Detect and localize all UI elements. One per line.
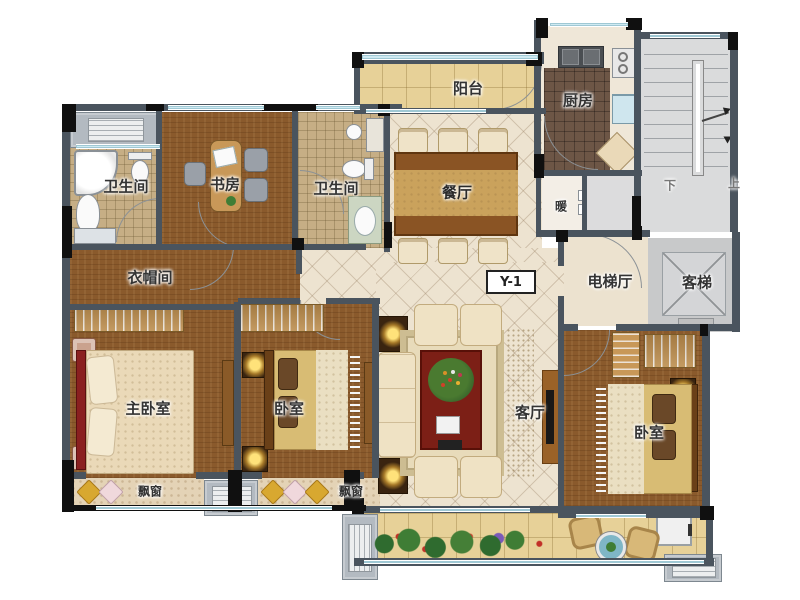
wall <box>558 296 564 330</box>
bed-runner <box>316 350 348 450</box>
wall-black <box>146 104 164 111</box>
window <box>364 560 704 564</box>
wall <box>372 302 379 478</box>
wall-black <box>700 506 714 520</box>
wall-black <box>62 206 72 258</box>
bed-pillow <box>652 394 676 424</box>
label-bay-window-middle: 飘窗 <box>339 483 363 500</box>
wall <box>64 244 366 250</box>
patio-table-plant <box>606 542 616 552</box>
wall <box>536 174 541 234</box>
window <box>96 506 332 510</box>
window <box>362 54 538 60</box>
label-bedroom-middle: 卧室 <box>274 398 304 419</box>
wall <box>156 110 162 250</box>
stove-burner <box>618 52 628 62</box>
toilet-bowl <box>342 160 366 178</box>
wall-black <box>292 238 304 250</box>
toilet-tank <box>364 158 374 180</box>
window <box>168 105 264 110</box>
armchair <box>414 304 458 346</box>
wall-black <box>626 18 642 30</box>
dining-chair <box>438 128 468 154</box>
bookshelf <box>612 332 640 378</box>
window <box>316 105 360 110</box>
dining-chair <box>398 128 428 154</box>
label-kitchen: 厨房 <box>563 90 593 111</box>
wall <box>702 330 710 518</box>
wall <box>64 304 240 310</box>
armchair <box>414 456 458 498</box>
bed-fringe <box>350 352 360 448</box>
bed-pillow <box>86 355 119 406</box>
dining-chair <box>478 238 508 264</box>
label-study: 书房 <box>210 174 240 195</box>
window <box>650 34 720 38</box>
label-balcony-top: 阳台 <box>453 78 483 99</box>
flower-bed <box>368 524 572 560</box>
dining-chair <box>438 238 468 264</box>
wall <box>732 232 740 332</box>
wall <box>582 174 587 234</box>
label-bathroom-left: 卫生间 <box>103 176 148 197</box>
wall-black <box>384 222 392 248</box>
wall <box>538 170 642 176</box>
wall-black <box>62 460 74 512</box>
label-stairs-up: 上 <box>728 175 740 192</box>
bed-headboard <box>76 350 86 470</box>
bed-fringe <box>596 386 606 492</box>
wall-black <box>728 32 738 50</box>
washing-machine <box>74 228 116 244</box>
flower-dots <box>448 378 452 382</box>
bath-cabinet <box>366 118 384 152</box>
pedestal-sink <box>76 194 100 232</box>
wall-black <box>262 104 318 111</box>
remote-control <box>438 440 462 450</box>
kitchen-sink-basin <box>562 49 579 65</box>
marble-pad-handle <box>688 524 692 536</box>
serving-tray <box>436 416 460 434</box>
window <box>380 508 530 512</box>
wall-black <box>536 18 548 38</box>
unit-code-label: Y-1 <box>500 275 522 290</box>
desk-chair <box>244 178 268 202</box>
window <box>550 22 628 27</box>
window <box>366 109 486 113</box>
dining-chair <box>398 238 428 264</box>
bed-pillow <box>278 358 298 390</box>
wall <box>296 248 302 274</box>
wall <box>616 324 738 331</box>
ac-unit <box>88 118 144 142</box>
label-stairs-down: 下 <box>664 177 676 194</box>
window <box>76 144 160 149</box>
dresser <box>222 360 234 446</box>
label-bay-window-left: 飘窗 <box>138 483 162 500</box>
wardrobe-rack <box>240 304 324 332</box>
wall-black <box>62 104 76 132</box>
wall-black <box>352 498 364 514</box>
wall <box>558 330 564 518</box>
stove-burner <box>618 64 628 74</box>
kitchen-sink-basin <box>583 49 600 65</box>
wall-black <box>632 226 642 240</box>
label-master-bedroom: 主卧室 <box>125 398 170 419</box>
wall <box>730 32 738 232</box>
wash-basin <box>346 124 362 140</box>
wall-black <box>534 154 544 178</box>
sofa-main <box>378 352 416 458</box>
armchair <box>460 304 502 346</box>
label-elevator: 客梯 <box>682 272 712 293</box>
wardrobe-rack <box>644 334 696 368</box>
desk-chair <box>184 162 206 186</box>
bed-pillow <box>86 407 118 457</box>
dining-chair <box>478 128 508 154</box>
label-living-room: 客厅 <box>515 402 545 423</box>
wall <box>62 104 70 512</box>
label-cloakroom: 衣帽间 <box>127 267 172 288</box>
desk-chair <box>244 148 268 172</box>
label-dining: 餐厅 <box>442 182 472 203</box>
bed-headboard <box>264 350 274 450</box>
desk-plant <box>226 196 236 206</box>
label-bathroom-mid: 卫生间 <box>313 178 358 199</box>
unit-code-box: Y-1 <box>486 270 536 294</box>
floor-plan: 卫生间 书房 卫生间 阳台 厨房 餐厅 暖 下 上 电梯厅 客梯 衣帽间 主卧室… <box>0 0 800 600</box>
wall <box>238 298 300 304</box>
tv <box>546 390 554 444</box>
toilet-tank <box>128 152 152 160</box>
wall <box>234 302 241 478</box>
label-heating: 暖 <box>555 198 567 215</box>
label-bedroom-right: 卧室 <box>634 422 664 443</box>
stair-rail <box>692 60 704 176</box>
wall-black <box>700 324 708 336</box>
window <box>576 514 646 518</box>
label-elevator-hall: 电梯厅 <box>587 271 632 292</box>
wall-black <box>556 230 568 242</box>
armchair <box>460 456 502 498</box>
wall <box>292 110 298 250</box>
vanity-sink <box>354 206 376 236</box>
